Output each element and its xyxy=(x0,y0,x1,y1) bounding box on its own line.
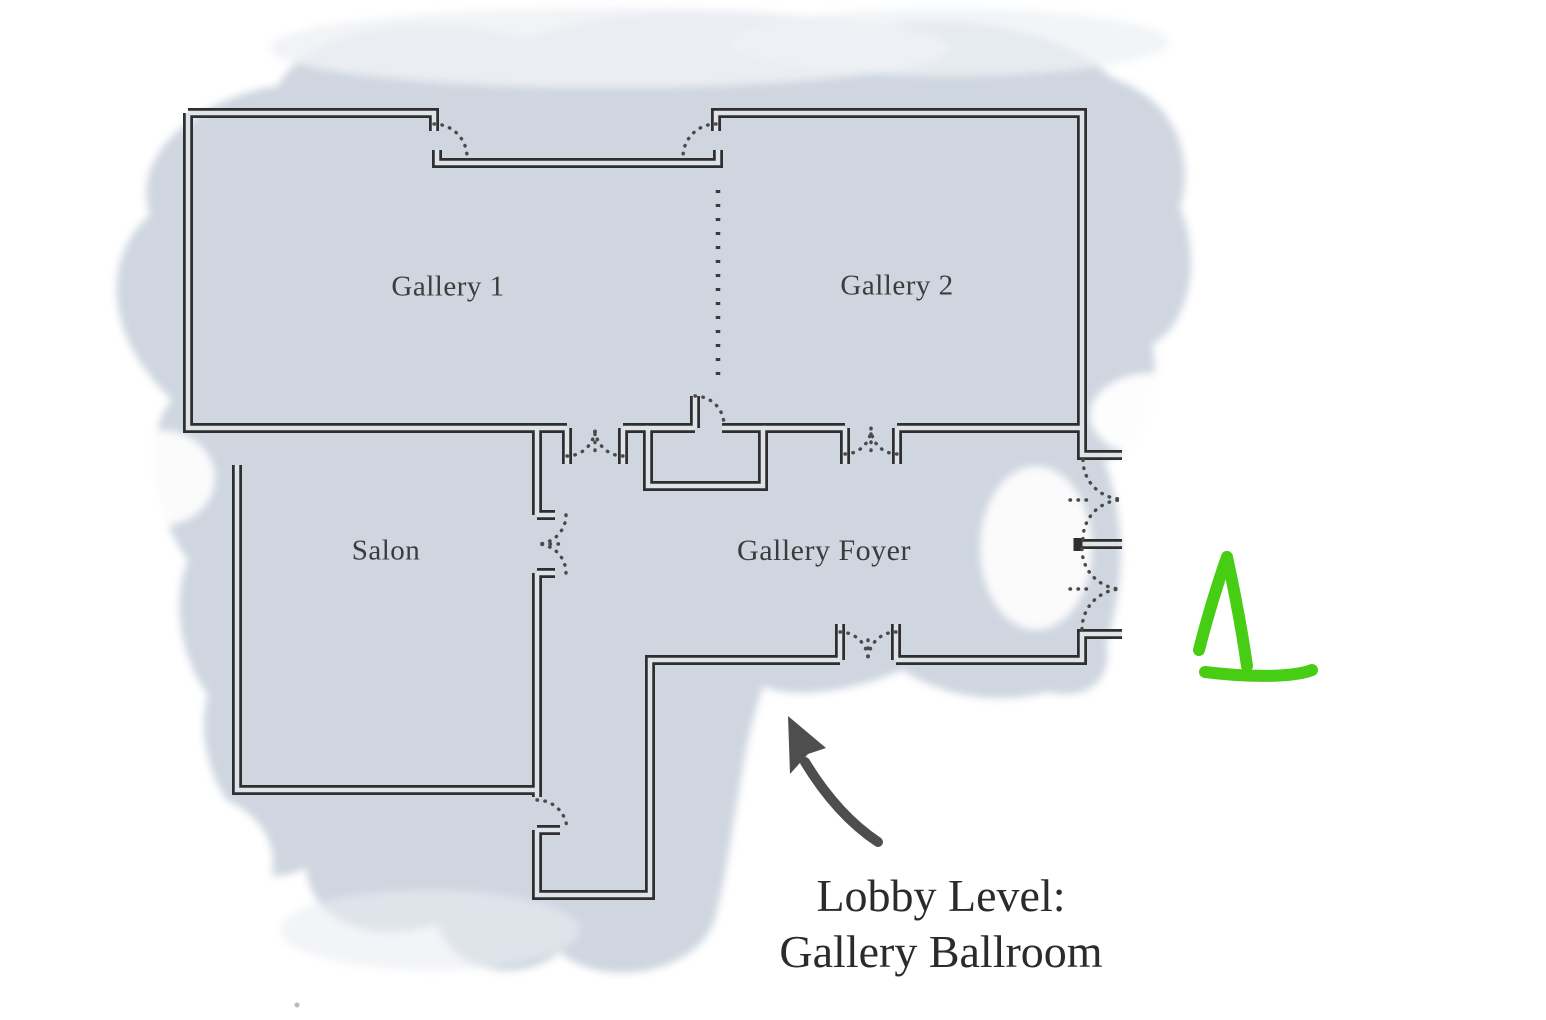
green-marker-annotation-icon xyxy=(1199,557,1312,676)
annotation-layer xyxy=(0,0,1546,1020)
floorplan-page: Gallery 1 Gallery 2 Salon Gallery Foyer … xyxy=(0,0,1546,1020)
arrow-tail xyxy=(805,762,878,842)
marker-left-leg xyxy=(1199,557,1227,650)
marker-right-leg xyxy=(1227,557,1247,666)
pointer-arrow-icon xyxy=(788,716,878,842)
marker-underline xyxy=(1205,670,1312,676)
